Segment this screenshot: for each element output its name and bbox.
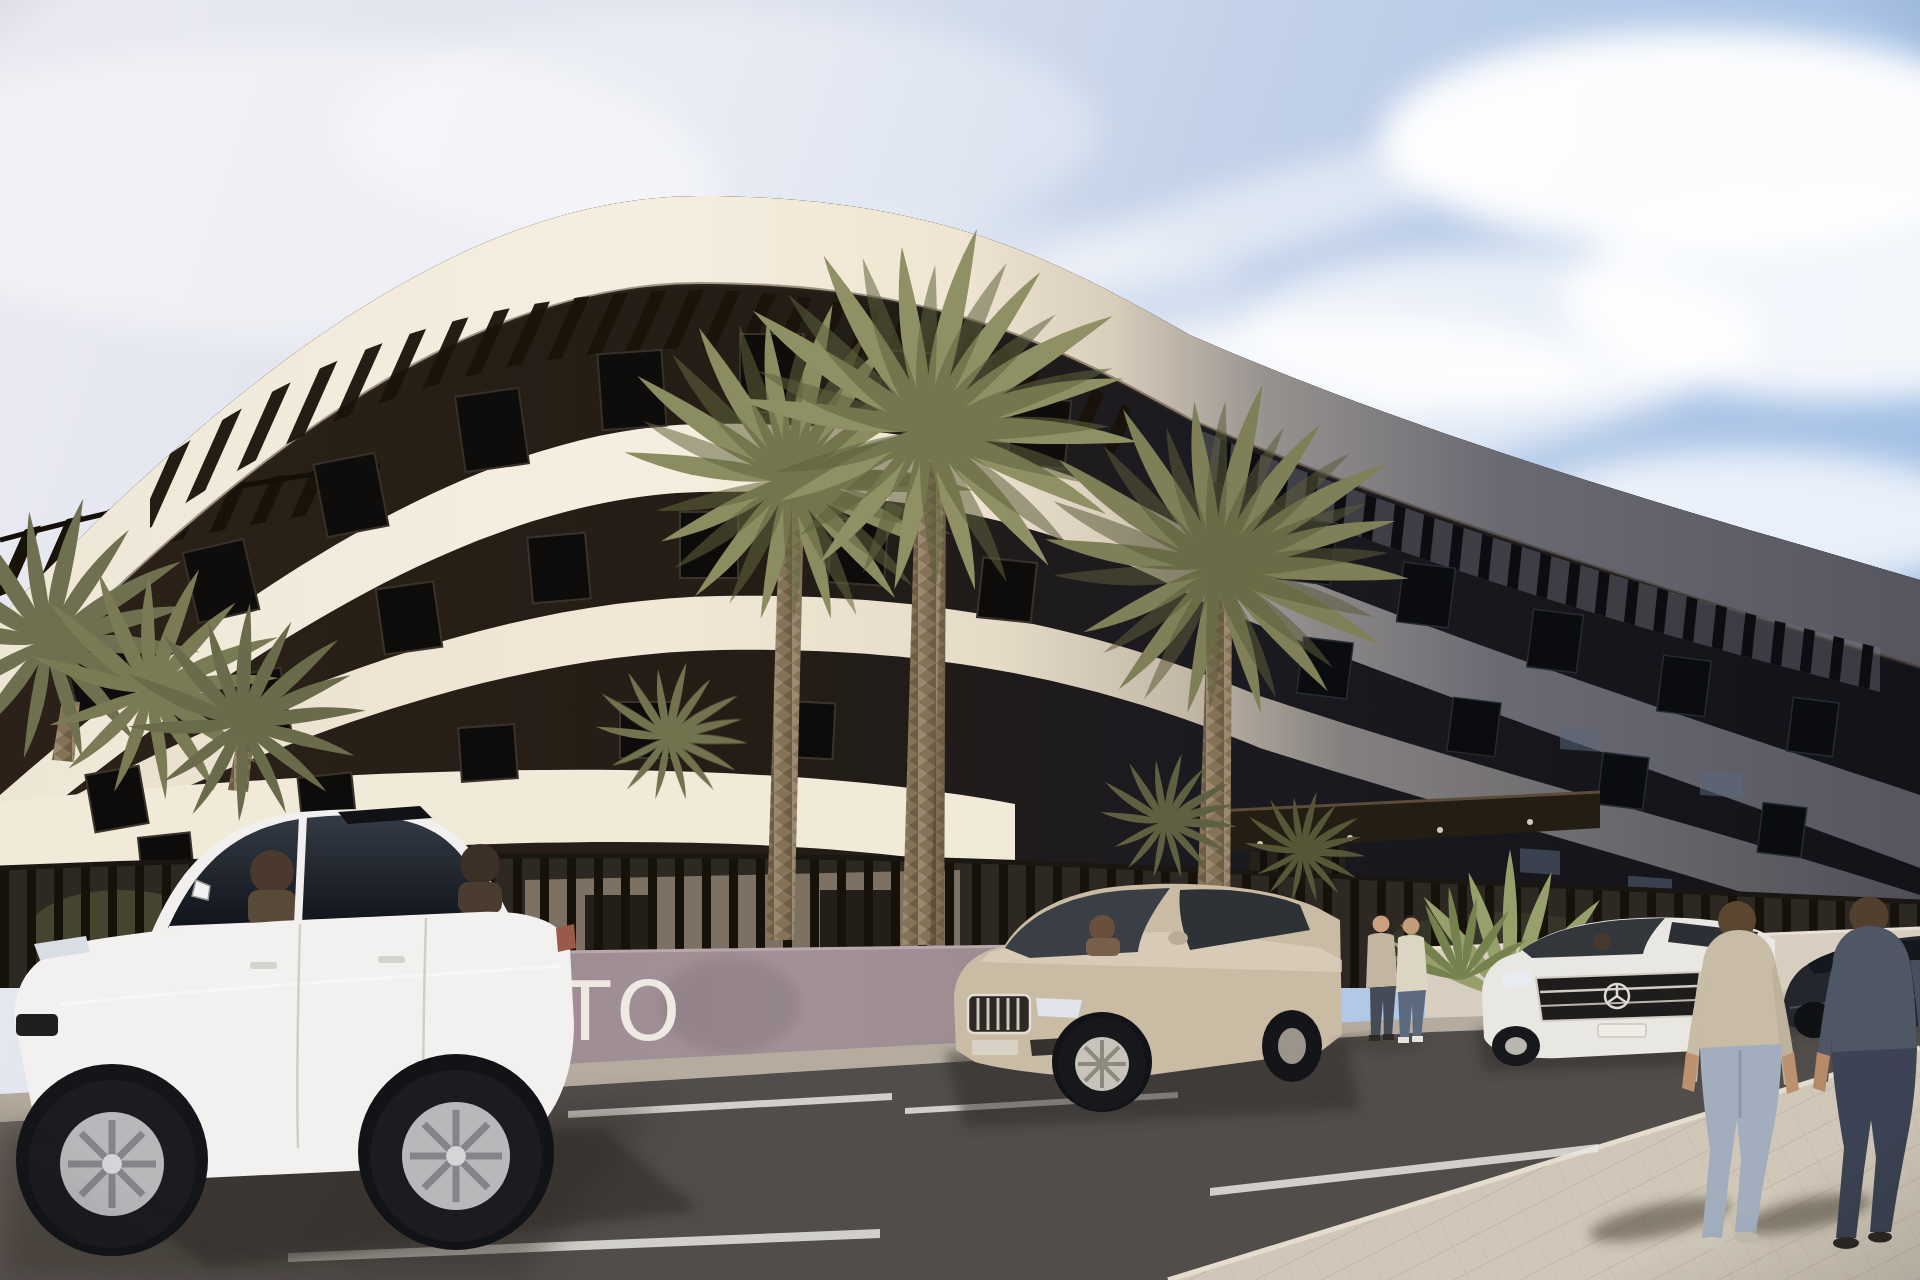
scene-svg: TO [0, 0, 1920, 1280]
vignette-overlay [0, 0, 1920, 1280]
render-stage: TO [0, 0, 1920, 1280]
